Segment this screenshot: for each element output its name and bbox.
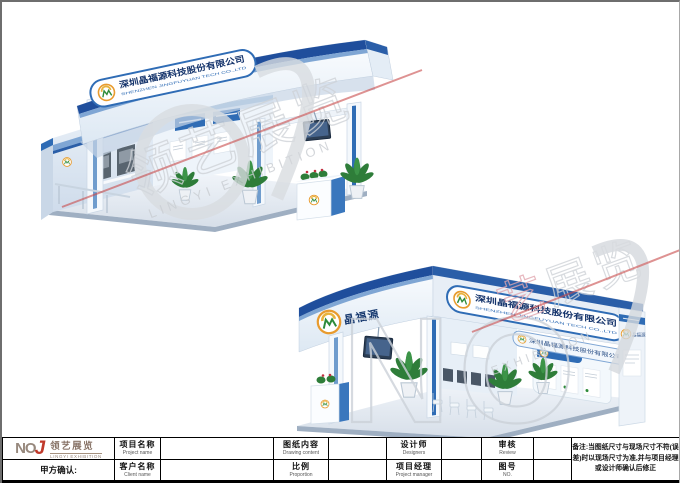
drawing-no-en: NO. — [482, 472, 533, 478]
client-name-en: Client name — [115, 472, 160, 478]
jfy-logo-icon — [309, 195, 319, 205]
designer-label: 设计师 Designers — [387, 437, 442, 460]
project-manager-cn: 项目经理 — [387, 462, 441, 472]
proportion-cn: 比例 — [274, 462, 328, 472]
proportion-label: 比例 Proportion — [274, 460, 329, 482]
drawing-sheet: 深圳晶福源科技股份有限公司 SHENZHEN JINGFUYUAN TECH C… — [0, 0, 680, 483]
note-cell: 备注:当图纸尺寸与现场尺寸不符(误差)时以现场尺寸为准,并与项目经理或设计师确认… — [572, 437, 680, 482]
project-manager-en: Project manager — [387, 472, 441, 478]
designer-cn: 设计师 — [387, 440, 441, 450]
project-manager-value — [442, 460, 482, 482]
logo-en-text: LINGYI EXHIBITION — [50, 453, 102, 460]
booth-renders: 深圳晶福源科技股份有限公司 SHENZHEN JINGFUYUAN TECH C… — [2, 2, 680, 439]
title-block: NOJ 领艺展览 LINGYI EXHIBITION 项目名称 Project … — [2, 437, 680, 483]
drawing-no-cn: 图号 — [482, 462, 533, 472]
designer-en: Designers — [387, 450, 441, 456]
drawing-content-value — [329, 437, 387, 460]
lingyi-logo: NOJ 领艺展览 LINGYI EXHIBITION — [3, 438, 114, 460]
project-name-en: Project name — [115, 450, 160, 456]
logo-letter-j: J — [35, 440, 46, 457]
project-name-label: 项目名称 Project name — [115, 437, 161, 460]
client-name-cn: 客户名称 — [115, 462, 160, 472]
jfy-logo-icon — [63, 158, 72, 167]
company-logo-cell: NOJ 领艺展览 LINGYI EXHIBITION — [3, 437, 115, 460]
review-label: 审核 Review — [482, 437, 534, 460]
drawing-no-label: 图号 NO. — [482, 460, 534, 482]
reception-counter — [295, 169, 347, 220]
jfy-logo-icon — [321, 400, 329, 408]
project-name-cn: 项目名称 — [115, 440, 160, 450]
drawing-content-en: Drawing content — [274, 450, 328, 456]
drawing-content-label: 图纸内容 Drawing content — [274, 437, 329, 460]
client-name-label: 客户名称 Client name — [115, 460, 161, 482]
project-name-value — [161, 437, 274, 460]
review-en: Review — [482, 450, 533, 456]
logo-cn-text: 领艺展览 — [50, 438, 94, 452]
proportion-en: Proportion — [274, 472, 328, 478]
logo-letters-no: NO — [15, 440, 36, 457]
designer-value — [442, 437, 482, 460]
drawing-content-cn: 图纸内容 — [274, 440, 328, 450]
drawing-no-value — [534, 460, 572, 482]
proportion-value — [329, 460, 387, 482]
review-cn: 审核 — [482, 440, 533, 450]
review-value — [534, 437, 572, 460]
client-name-value — [161, 460, 274, 482]
project-manager-label: 项目经理 Project manager — [387, 460, 442, 482]
party-a-confirm-label: 甲方确认: — [3, 460, 115, 482]
